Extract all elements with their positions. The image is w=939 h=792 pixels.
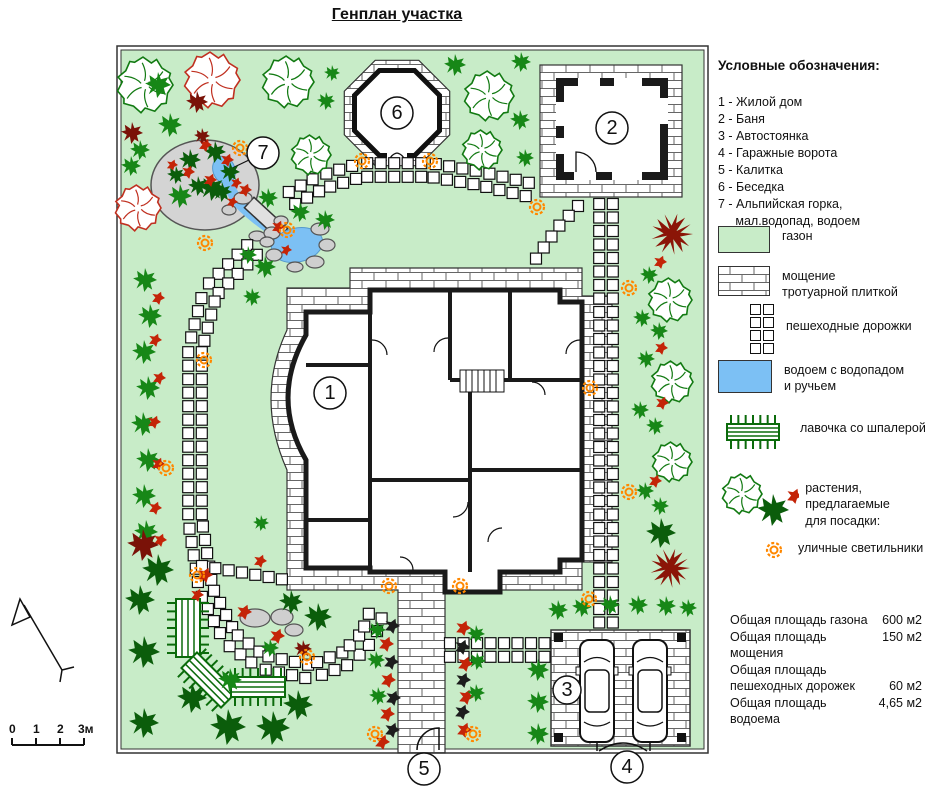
- pond-swatch: [718, 360, 772, 393]
- legend-item: 7 - Альпийская горка, мал.водопад, водое…: [718, 196, 860, 230]
- pond-label: водоем с водопадом и ручьем: [784, 360, 904, 395]
- legend-item: 5 - Калитка: [718, 162, 860, 179]
- main-house: [288, 290, 582, 592]
- legend-pond-row: водоем с водопадом и ручьем: [718, 360, 904, 395]
- page-title: Генплан участка: [257, 6, 537, 24]
- paths-swatch: [750, 304, 774, 354]
- stat-label: Общая площадь газона: [730, 612, 868, 629]
- lawn-swatch: [718, 226, 770, 253]
- svg-text:5: 5: [418, 758, 429, 780]
- legend-lamps-row: уличные светильники: [762, 538, 923, 562]
- legend-plants-row: растения, предлагаемые для посадки:: [718, 466, 936, 532]
- legend-item: 6 - Беседка: [718, 179, 860, 196]
- svg-text:2: 2: [606, 117, 617, 139]
- stat-label: Общая площадь мощения: [730, 629, 882, 662]
- site-plan-drawing: 1234567: [110, 40, 715, 792]
- legend-item: 1 - Жилой дом: [718, 94, 860, 111]
- stat-value: 600 м2: [882, 612, 922, 629]
- svg-text:4: 4: [621, 756, 632, 778]
- legend-bench-row: лавочка со шпалерой: [718, 408, 926, 456]
- scale-bar: 0123м: [9, 722, 94, 745]
- street-lamp-icon: [762, 538, 786, 562]
- bench-label: лавочка со шпалерой: [800, 408, 926, 436]
- legend-paving-row: мощение тротуарной плиткой: [718, 266, 898, 301]
- svg-text:2: 2: [57, 722, 64, 736]
- svg-text:7: 7: [257, 142, 268, 164]
- paving-label: мощение тротуарной плиткой: [782, 266, 898, 301]
- stat-label: пешеходных дорожек: [730, 678, 855, 695]
- legend-item: 2 - Баня: [718, 111, 860, 128]
- svg-text:6: 6: [391, 102, 402, 124]
- svg-text:1: 1: [324, 382, 335, 404]
- svg-text:3: 3: [561, 679, 572, 701]
- legend-heading: Условные обозначения:: [718, 58, 880, 73]
- stat-row: Общая площадь: [730, 662, 922, 679]
- legend-item: 4 - Гаражные ворота: [718, 145, 860, 162]
- stat-row: пешеходных дорожек60 м2: [730, 678, 922, 695]
- north-arrow-and-scale: 0123м: [0, 585, 110, 765]
- stat-row: Общая площадь газона600 м2: [730, 612, 922, 629]
- stat-value: 4,65 м2: [879, 695, 922, 728]
- stat-label: Общая площадь водоема: [730, 695, 879, 728]
- stat-value: 60 м2: [889, 678, 922, 695]
- svg-text:0: 0: [9, 722, 16, 736]
- paving-swatch: [718, 266, 770, 296]
- genplan-page: Генплан участка 1234567 0123м Условные о…: [0, 0, 939, 792]
- area-stats: Общая площадь газона600 м2Общая площадь …: [730, 612, 922, 728]
- legend-paths-row: пешеходные дорожки: [718, 304, 912, 354]
- plants-label: растения, предлагаемые для посадки:: [805, 466, 936, 529]
- stat-value: 150 м2: [882, 629, 922, 662]
- legend-lawn-row: газон: [718, 226, 813, 253]
- legend-item: 3 - Автостоянка: [718, 128, 860, 145]
- plants-icon: [718, 466, 799, 532]
- stat-row: Общая площадь мощения150 м2: [730, 629, 922, 662]
- legend-items: 1 - Жилой дом2 - Баня3 - Автостоянка4 - …: [718, 94, 860, 230]
- stat-label: Общая площадь: [730, 662, 827, 679]
- stat-row: Общая площадь водоема4,65 м2: [730, 695, 922, 728]
- north-arrow-icon: [12, 599, 74, 682]
- svg-text:3м: 3м: [78, 722, 94, 736]
- lawn-label: газон: [782, 226, 813, 244]
- lamps-label: уличные светильники: [798, 538, 923, 556]
- bench-trellis-icon: [718, 408, 788, 456]
- paths-label: пешеходные дорожки: [786, 304, 912, 334]
- svg-text:1: 1: [33, 722, 40, 736]
